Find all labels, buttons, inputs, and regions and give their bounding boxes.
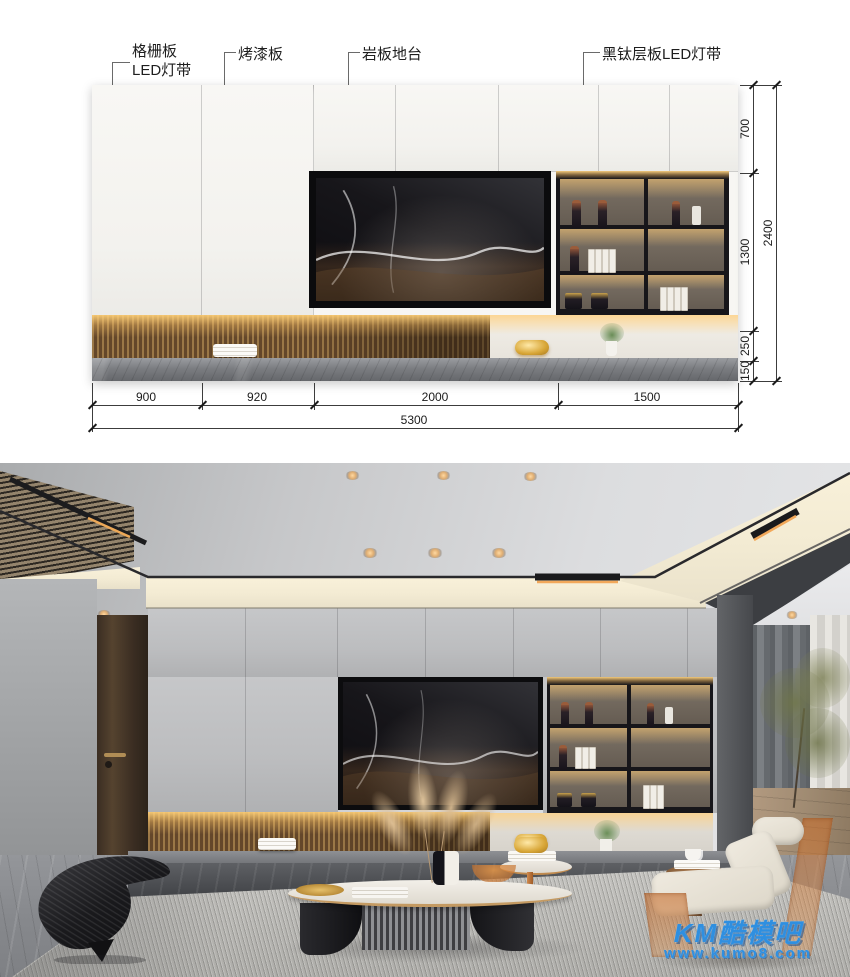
- dim-1500: 1500: [617, 390, 677, 404]
- panel-seam: [245, 608, 246, 812]
- decor-bottle: [585, 702, 593, 727]
- plant-pot: [606, 341, 617, 356]
- decor-bottle: [561, 702, 569, 727]
- panel-seam: [395, 85, 396, 171]
- door-lock: [105, 761, 112, 768]
- decor-bottle: [570, 246, 579, 274]
- decor-canister: [591, 293, 608, 309]
- tall-door-panels: [92, 85, 313, 315]
- tv-frame: [309, 171, 551, 308]
- stone-platform: [92, 358, 738, 381]
- cove-light-band: [146, 577, 706, 608]
- decor-book: [674, 287, 681, 311]
- label-grille-line1: 格栅板: [132, 42, 191, 61]
- decor-book: [582, 747, 589, 769]
- leader-line: [583, 52, 600, 53]
- magazine-stack: [258, 838, 296, 850]
- panel-seam: [201, 85, 202, 315]
- label-grille-line2: LED灯带: [132, 61, 191, 80]
- shelf-cell: [648, 229, 724, 271]
- label-slab: 岩板地台: [362, 45, 422, 64]
- door-handle: [104, 753, 126, 757]
- plant-foliage: [600, 323, 624, 343]
- dim-chain-line: [92, 405, 738, 406]
- ceiling-spotlight: [345, 471, 360, 480]
- flower-vase: [433, 851, 459, 885]
- dim-900: 900: [116, 390, 176, 404]
- tv-wall-upper-cabinets: [148, 608, 717, 677]
- decor-bottle: [647, 703, 654, 727]
- grille-slat-strip: [92, 315, 490, 358]
- dim-700: 700: [738, 99, 752, 159]
- tv-reflection: [316, 178, 544, 301]
- room-render: KM酷模吧 www.kumo8.com: [0, 463, 850, 977]
- decor-canister: [581, 793, 596, 807]
- ceiling-spotlight: [491, 548, 507, 558]
- design-sheet: 格栅板 LED灯带 烤漆板 岩板地台 黑钛层板LED灯带: [0, 0, 850, 977]
- cabinet-elevation: [92, 85, 738, 381]
- panel-seam: [669, 85, 670, 171]
- dim-5300: 5300: [384, 413, 444, 427]
- decor-book: [588, 249, 595, 273]
- decor-book: [667, 287, 674, 311]
- dim-chain-line: [753, 85, 754, 381]
- decor-book: [660, 287, 667, 311]
- tv-screen: [316, 178, 544, 301]
- panel-seam: [687, 608, 688, 677]
- shelf-unit: [547, 677, 713, 813]
- decor-book: [589, 747, 596, 769]
- table-base-striped: [362, 900, 470, 950]
- decor-book: [609, 249, 616, 273]
- leader-line: [112, 62, 130, 63]
- dim-1300: 1300: [738, 222, 752, 282]
- decor-book: [602, 249, 609, 273]
- decor-book: [681, 287, 688, 311]
- tree-foliage: [795, 648, 850, 708]
- decor-canister: [557, 793, 572, 807]
- coffee-cup: [685, 849, 701, 861]
- panel-seam: [498, 85, 499, 171]
- panel-seam: [425, 608, 426, 677]
- shelf-led-strip: [556, 171, 729, 179]
- cove-light-band-right: [620, 463, 850, 608]
- decor-bottle: [672, 201, 680, 228]
- decor-book: [657, 785, 664, 809]
- panel-seam: [513, 608, 514, 677]
- book-stack: [674, 860, 720, 869]
- dim-chain-line: [776, 85, 777, 381]
- shelf-cell: [631, 728, 710, 767]
- dim-2000: 2000: [405, 390, 465, 404]
- ceiling-spotlight: [436, 471, 451, 480]
- shelf-led-strip: [547, 677, 713, 685]
- label-lacquer: 烤漆板: [238, 45, 283, 64]
- magazine-stack: [213, 344, 257, 357]
- decor-book: [643, 785, 650, 809]
- leader-line: [224, 52, 236, 53]
- decor-bottle: [572, 200, 581, 228]
- ceiling-spotlight: [362, 548, 378, 558]
- gold-pig-figurine: [514, 837, 548, 853]
- dim-150: 150: [738, 341, 752, 401]
- gold-leaf-dish: [296, 884, 344, 896]
- ceiling-spotlight: [523, 472, 538, 481]
- entry-door: [97, 615, 148, 860]
- book-stack: [352, 887, 408, 898]
- panel-seam: [598, 85, 599, 171]
- elevation-section: 格栅板 LED灯带 烤漆板 岩板地台 黑钛层板LED灯带: [0, 0, 850, 450]
- panel-seam: [337, 608, 338, 677]
- decor-vase: [665, 707, 673, 724]
- decor-bottle: [559, 745, 567, 770]
- dim-2400: 2400: [761, 203, 775, 263]
- watermark-url: www.kumo8.com: [648, 945, 828, 962]
- decor-vase: [692, 206, 701, 225]
- label-shelf-led: 黑钛层板LED灯带: [602, 45, 721, 64]
- tree-foliage: [785, 708, 850, 778]
- upper-cabinets: [314, 85, 738, 171]
- spinning-chair: [20, 829, 190, 964]
- label-grille-led: 格栅板 LED灯带: [132, 42, 191, 80]
- opening-spotlight: [786, 611, 798, 619]
- dim-chain-line: [92, 428, 738, 429]
- panel-seam: [600, 608, 601, 677]
- decor-bottle: [598, 200, 607, 228]
- gold-pig-figurine: [515, 340, 549, 355]
- leader-line: [348, 52, 360, 53]
- decor-book: [595, 249, 602, 273]
- decor-book: [650, 785, 657, 809]
- shelf-unit: [556, 171, 729, 315]
- tv-wall-left-panels: [148, 677, 338, 812]
- shelf-cell: [648, 179, 724, 225]
- ceiling-spotlight: [427, 548, 443, 558]
- decor-book: [575, 747, 582, 769]
- indoor-tree: [750, 648, 850, 808]
- dim-920: 920: [227, 390, 287, 404]
- decor-canister: [565, 293, 582, 309]
